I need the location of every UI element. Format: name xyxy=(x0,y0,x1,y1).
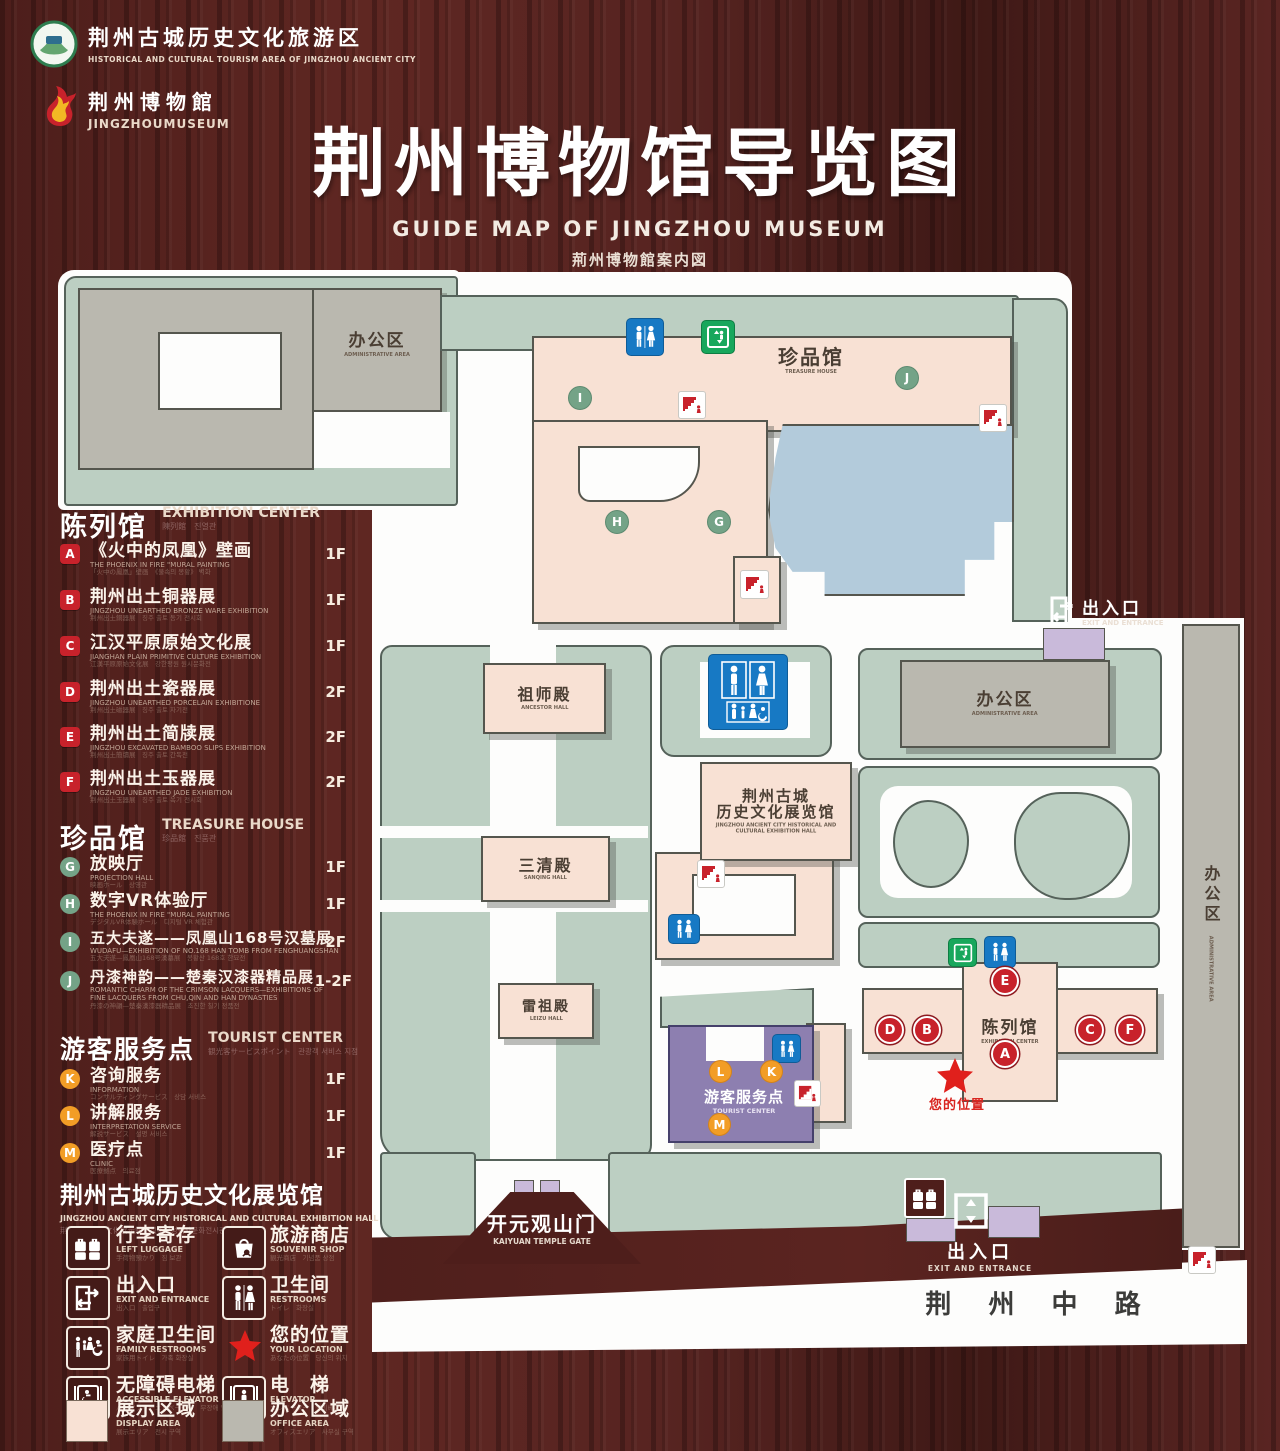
treasure-courtyard xyxy=(578,446,700,502)
legend-b-sub: 荆州出土銅器展 징주 출토 동기 전시회 xyxy=(90,615,360,622)
marker-f: F xyxy=(1116,1016,1144,1044)
elevator-zh: 电 梯 xyxy=(270,1376,400,1395)
legend-section-treasure: 珍品馆 TREASURE HOUSE 珍品館 진품관 xyxy=(60,817,360,856)
exit-right-label: 出入口 EXIT AND ENTRANCE xyxy=(1082,594,1164,627)
page-title: 荆州博物馆导览图 GUIDE MAP OF JINGZHOU MUSEUM 荊州… xyxy=(250,104,1030,293)
restroom-icon-central xyxy=(708,654,788,730)
leizu-en: LEIZU HALL xyxy=(530,1016,563,1022)
your-location-sub: あなたの位置 당신의 위치 xyxy=(270,1355,400,1362)
legend-badge-d: D xyxy=(60,682,80,702)
restroom-icon-ancient-city xyxy=(668,914,700,944)
stairs-icon-treasure-3 xyxy=(740,570,769,599)
hall-note-en: JINGZHOU ANCIENT CITY HISTORICAL AND CUL… xyxy=(60,1214,405,1223)
office-area-sub: オフィスエリア 사무실 구역 xyxy=(270,1429,400,1436)
exhibition-center-zh: 陈列馆 xyxy=(982,1019,1039,1038)
family-restrooms-icon xyxy=(66,1326,110,1370)
tourist-center-label: 游客服务点 TOURIST CENTER xyxy=(684,1086,804,1115)
legend-badge-j: J xyxy=(60,971,80,991)
legend-d-zh: 荆州出土瓷器展 xyxy=(90,681,360,699)
admin-strip-label: 办公区 ADMINISTRATIVE AREA xyxy=(1202,865,1221,1008)
legend-j-floor: 1-2F xyxy=(315,972,352,990)
admin-top-en: ADMINISTRATIVE AREA xyxy=(330,351,424,357)
legend-l-floor: 1F xyxy=(325,1107,346,1125)
your-location-label: 您的位置 xyxy=(922,1094,992,1113)
admin-strip-zh: 办公区 xyxy=(1202,865,1221,925)
ancient-city-en: JINGZHOU ANCIENT CITY HISTORICAL AND CUL… xyxy=(712,822,840,834)
legend-c-sub: 江漢平原原始文化展 강한평원 원시문화전 xyxy=(90,661,360,668)
legend-item-h: H 数字VR体验厅 THE PHOENIX IN FIRE "MURAL PAI… xyxy=(60,893,360,931)
legend-l-sub: 解説サービス 설명 서비스 xyxy=(90,1131,360,1138)
legend-item-f: F 荆州出土玉器展 JINGZHOU UNEARTHED JADE EXHIBI… xyxy=(60,771,360,813)
legend-e-sub: 荆州出土簡牘展 징주 출토 간독전 xyxy=(90,752,360,759)
kaiyuan-gate-en: KAIYUAN TEMPLE GATE xyxy=(452,1237,632,1246)
exit-right-zh: 出入口 xyxy=(1082,594,1164,619)
legend-k-sub: コンサルティングサービス 상담 서비스 xyxy=(90,1094,360,1101)
legend-treasure-title-sub: 珍品館 진품관 xyxy=(162,833,304,844)
exit-bottom-zh: 出入口 xyxy=(900,1238,1060,1264)
museum-logo xyxy=(40,82,80,128)
kaiyuan-gate-zh: 开元观山门 xyxy=(452,1208,632,1237)
legend-tourist-title-sub: 観光客サービスポイント 관광객 서비스 지점 xyxy=(208,1046,358,1057)
legend-treasure-title: 珍品馆 xyxy=(60,824,147,855)
kaiyuan-gate-label: 开元观山门 KAIYUAN TEMPLE GATE xyxy=(452,1208,632,1246)
legend-badge-i: I xyxy=(60,932,80,952)
legend-badge-l: L xyxy=(60,1106,80,1126)
admin-top-courtyard xyxy=(158,332,282,410)
left-luggage-icon xyxy=(66,1226,110,1270)
marker-h: H xyxy=(605,510,629,534)
legend-h-sub: デジタルVR体験ホール 디지털 VR 체험관 xyxy=(90,919,360,926)
elevator-icon-exhibition xyxy=(948,938,977,967)
legend-g-sub: 映画ホール 상영관 xyxy=(90,882,360,889)
legend-badge-e: E xyxy=(60,727,80,747)
admin-top-courtyard2 xyxy=(314,412,450,468)
legend-badge-a: A xyxy=(60,544,80,564)
legend-item-g: G 放映厅 PROJECTION HALL 映画ホール 상영관 1F xyxy=(60,856,360,892)
legend-badge-h: H xyxy=(60,894,80,914)
marker-m: M xyxy=(708,1113,731,1136)
tourism-logo-zh: 荆州古城历史文化旅游区 xyxy=(88,22,416,52)
museum-logo-en: JINGZHOUMUSEUM xyxy=(88,117,230,131)
treasure-zh: 珍品馆 xyxy=(756,346,866,368)
museum-logo-zh: 荆州博物館 xyxy=(88,86,230,115)
legend-i-sub: 五大夫遂—鳳凰山168号漢墓展 봉황산 168호 한묘전 xyxy=(90,955,360,962)
office-area-swatch xyxy=(222,1400,264,1442)
legend-a-sub: 「火中の鳳凰」壁画 《불속의 봉황》 벽화 xyxy=(90,569,360,576)
marker-g: G xyxy=(707,510,731,534)
admin-strip-en: ADMINISTRATIVE AREA xyxy=(1208,936,1214,1002)
tourism-logo-text: 荆州古城历史文化旅游区 HISTORICAL AND CULTURAL TOUR… xyxy=(88,22,416,64)
legend-treasure-title-en: TREASURE HOUSE xyxy=(162,817,304,833)
treasure-en: TREASURE HOUSE xyxy=(764,369,858,375)
sanqing-en: SANQING HALL xyxy=(524,875,567,881)
title-en: GUIDE MAP OF JINGZHOU MUSEUM xyxy=(250,217,1030,241)
legend-badge-m: M xyxy=(60,1143,80,1163)
exit-entrance-icon xyxy=(66,1276,110,1320)
marker-e: E xyxy=(991,967,1019,995)
legend-badge-c: C xyxy=(60,636,80,656)
exit-bottom-en: EXIT AND ENTRANCE xyxy=(900,1264,1060,1273)
sanqing-zh: 三清殿 xyxy=(518,857,572,875)
legend-badge-f: F xyxy=(60,772,80,792)
admin-right-building: 办公区 ADMINISTRATIVE AREA xyxy=(900,660,1110,748)
legend-tourist-title-en: TOURIST CENTER xyxy=(208,1030,358,1046)
legend-exhibition-title-en: EXHIBITION CENTER xyxy=(162,505,320,521)
guide-map-poster: 荆州古城历史文化旅游区 HISTORICAL AND CULTURAL TOUR… xyxy=(0,0,1280,1451)
marker-b: B xyxy=(913,1016,941,1044)
legend-f-floor: 2F xyxy=(325,773,346,791)
legend-m-floor: 1F xyxy=(325,1144,346,1162)
legend-c-zh: 江汉平原原始文化展 xyxy=(90,635,360,653)
legend-section-exhibition: 陈列馆 EXHIBITION CENTER 陳列館 진열관 xyxy=(60,505,360,544)
ancient-city-zh1: 荆州古城 xyxy=(742,788,810,805)
legend-c-floor: 1F xyxy=(325,637,346,655)
restroom-icon-exhibition xyxy=(984,936,1016,968)
ancestor-en: ANCESTOR HALL xyxy=(521,704,568,710)
marker-i: I xyxy=(568,386,592,410)
tourist-courtyard xyxy=(706,1027,764,1061)
legend-b-zh: 荆州出土铜器展 xyxy=(90,589,360,607)
ancient-city-hall: 荆州古城 历史文化展览馆 JINGZHOU ANCIENT CITY HISTO… xyxy=(700,762,852,861)
legend-item-k: K 咨询服务 INFORMATION コンサルティングサービス 상담 서비스 1… xyxy=(60,1068,360,1102)
exit-icon-bottom xyxy=(953,1192,989,1230)
legend-j-en: ROMANTIC CHARM OF THE CRIMSON LACQUERS—E… xyxy=(90,986,330,1003)
legend-badge-k: K xyxy=(60,1069,80,1089)
legend-item-a: A 《火中的凤凰》壁画 THE PHOENIX IN FIRE "MURAL P… xyxy=(60,543,360,585)
legend-d-sub: 荆州出土磁器展 징주 출토 자기전 xyxy=(90,707,360,714)
admin-strip-building: 办公区 ADMINISTRATIVE AREA xyxy=(1182,624,1240,1248)
admin-top-zh: 办公区 xyxy=(322,332,432,351)
gatehouse-right xyxy=(1043,628,1105,660)
admin-right-zh: 办公区 xyxy=(977,691,1034,710)
legend-i-zh: 五大夫遂——凤凰山168号汉墓展 xyxy=(90,931,360,947)
legend-e-floor: 2F xyxy=(325,728,346,746)
title-zh: 荆州博物馆导览图 xyxy=(250,104,1030,211)
restroom-icon-treasure xyxy=(626,318,664,356)
lawn-right-border xyxy=(1012,298,1068,622)
tourism-area-logo xyxy=(30,20,78,68)
stairs-icon-treasure-1 xyxy=(678,391,706,419)
tourist-center-en: TOURIST CENTER xyxy=(684,1107,804,1115)
legend-f-sub: 荆州出土玉器展 징주 출토 옥기 전시회 xyxy=(90,797,360,804)
your-location-star xyxy=(936,1058,974,1094)
legend-d-floor: 2F xyxy=(325,683,346,701)
stairs-icon-tourist xyxy=(794,1080,821,1107)
gatehouse-bottom-right xyxy=(988,1206,1040,1238)
hall-note-zh: 荆州古城历史文化展览馆 xyxy=(60,1176,405,1210)
admin-top-label: 办公区 ADMINISTRATIVE AREA xyxy=(322,332,432,358)
legend-item-j: J 丹漆神韵——楚秦汉漆器精品展 ROMANTIC CHARM OF THE C… xyxy=(60,970,360,1018)
office-area-zh: 办公区域 xyxy=(270,1400,400,1419)
ancestor-zh: 祖师殿 xyxy=(517,686,571,704)
admin-right-en: ADMINISTRATIVE AREA xyxy=(972,710,1038,716)
legend-section-tourist: 游客服务点 TOURIST CENTER 観光客サービスポイント 관광객 서비스… xyxy=(60,1030,370,1066)
marker-a: A xyxy=(991,1040,1019,1068)
legend-exhibition-title-sub: 陳列館 진열관 xyxy=(162,521,320,532)
legend-item-e: E 荆州出土简牍展 JINGZHOU EXCAVATED BAMBOO SLIP… xyxy=(60,726,360,768)
stairs-icon-strip xyxy=(1188,1246,1216,1274)
legend-h-floor: 1F xyxy=(325,895,346,913)
exit-bottom-label: 出入口 EXIT AND ENTRANCE xyxy=(900,1238,1060,1273)
legend-k-floor: 1F xyxy=(325,1070,346,1088)
marker-c: C xyxy=(1076,1016,1104,1044)
museum-logo-text: 荆州博物館 JINGZHOUMUSEUM xyxy=(88,86,230,131)
left-luggage-icon-map xyxy=(904,1178,946,1218)
legend-item-m: M 医疗点 CLINIC 医療拠点 의료점 1F xyxy=(60,1142,360,1176)
legend-tourist-title: 游客服务点 xyxy=(60,1035,195,1064)
legend-item-b: B 荆州出土铜器展 JINGZHOU UNEARTHED BRONZE WARE… xyxy=(60,589,360,631)
legend-exhibition-title: 陈列馆 xyxy=(60,512,147,543)
legend-item-c: C 江汉平原原始文化展 JIANGHAN PLAIN PRIMITIVE CUL… xyxy=(60,635,360,677)
legend-badge-b: B xyxy=(60,590,80,610)
display-area-swatch xyxy=(66,1400,108,1442)
legend-e-zh: 荆州出土简牍展 xyxy=(90,726,360,744)
marker-d: D xyxy=(876,1016,904,1044)
legend-i-floor: 2F xyxy=(325,933,346,951)
legend-badge-g: G xyxy=(60,857,80,877)
legend-b-floor: 1F xyxy=(325,591,346,609)
treasure-label: 珍品馆 TREASURE HOUSE xyxy=(756,346,866,375)
legend-j-sub: 丹漆の神韻—楚秦漢漆器精品展 초진한 칠기 정품전 xyxy=(90,1003,360,1010)
leizu-zh: 雷祖殿 xyxy=(522,1000,570,1015)
restroom-icon-tourist xyxy=(772,1034,801,1063)
legend-h-zh: 数字VR体验厅 xyxy=(90,893,360,911)
legend-f-zh: 荆州出土玉器展 xyxy=(90,771,360,789)
legend-item-l: L 讲解服务 INTERPRETATION SERVICE 解説サービス 설명 … xyxy=(60,1105,360,1139)
souvenir-shop-icon xyxy=(222,1226,266,1270)
ancient-city-zh2: 历史文化展览馆 xyxy=(716,804,835,821)
stairs-icon-ancient-city xyxy=(697,860,725,888)
office-area-label: 办公区域 OFFICE AREA オフィスエリア 사무실 구역 xyxy=(270,1400,400,1437)
legend-a-zh: 《火中的凤凰》壁画 xyxy=(90,543,360,561)
tourist-center-zh: 游客服务点 xyxy=(684,1086,804,1107)
marker-l: L xyxy=(709,1060,732,1083)
exit-right-en: EXIT AND ENTRANCE xyxy=(1082,619,1164,627)
legend-k-zh: 咨询服务 xyxy=(90,1068,360,1086)
legend-item-i: I 五大夫遂——凤凰山168号汉墓展 WUDAFU—EXHIBITION OF … xyxy=(60,931,360,969)
your-location-icon xyxy=(228,1330,262,1362)
elevator-icon-treasure xyxy=(701,320,735,354)
legend-m-sub: 医療拠点 의료점 xyxy=(90,1168,360,1175)
legend-a-floor: 1F xyxy=(325,545,346,563)
stairs-icon-treasure-2 xyxy=(979,404,1007,432)
title-ja: 荊州博物館案内図 xyxy=(250,249,1030,270)
road-label: 荆 州 中 路 xyxy=(900,1284,1180,1321)
tourism-logo-en: HISTORICAL AND CULTURAL TOURISM AREA OF … xyxy=(88,55,416,64)
legend-l-zh: 讲解服务 xyxy=(90,1105,360,1123)
legend-g-floor: 1F xyxy=(325,858,346,876)
marker-k: K xyxy=(760,1060,783,1083)
sanqing-hall: 三清殿 SANQING HALL xyxy=(481,836,610,902)
restrooms-icon xyxy=(222,1276,266,1320)
exit-icon-right xyxy=(1050,596,1076,626)
marker-j: J xyxy=(895,366,919,390)
legend-item-d: D 荆州出土瓷器展 JINGZHOU UNEARTHED PORCELAIN E… xyxy=(60,681,360,723)
legend-m-zh: 医疗点 xyxy=(90,1142,360,1160)
ancestor-hall: 祖师殿 ANCESTOR HALL xyxy=(483,663,606,734)
legend-g-zh: 放映厅 xyxy=(90,856,360,874)
leizu-hall: 雷祖殿 LEIZU HALL xyxy=(498,983,594,1039)
